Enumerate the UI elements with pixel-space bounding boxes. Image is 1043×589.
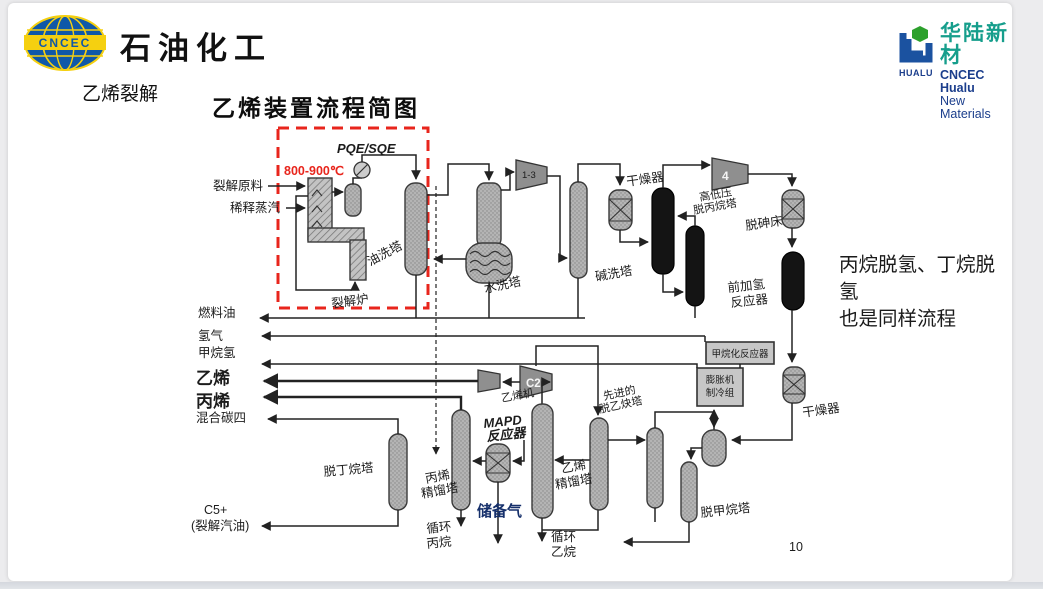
- demethanizer-label: 脱甲烷塔: [700, 500, 752, 520]
- product-c5-sub: (裂解汽油): [191, 518, 249, 533]
- recycle-propane-label-1: 循环: [426, 519, 452, 536]
- process-flow-diagram: 1-3 4 甲烷化反应器: [0, 0, 1043, 589]
- water-wash-column: [434, 172, 514, 318]
- pqe-sqe-label: PQE/SQE: [337, 141, 396, 156]
- recycle-ethane-label-1: 循环: [551, 530, 576, 544]
- dearsenic-bed: [782, 190, 804, 247]
- feed-label: 裂解原料: [213, 179, 264, 193]
- product-c5: C5+: [204, 503, 227, 517]
- ethylene-col-label-2: 精馏塔: [554, 471, 594, 492]
- deacetylene-column: [590, 418, 645, 510]
- charge-gas-compressor-1-3: 1-3: [516, 160, 567, 258]
- recycle-ethane-label-2: 乙烷: [551, 545, 577, 559]
- caustic-wash-column: [570, 164, 620, 318]
- reflux-drum: [691, 430, 726, 466]
- expander-chiller-box: 膨胀机 制冷组: [697, 364, 743, 430]
- product-ethylene: 乙烯: [196, 368, 230, 388]
- page-number: 10: [789, 540, 803, 554]
- dryer1-label: 干燥器: [625, 170, 665, 189]
- furnace-label: 裂解炉: [330, 292, 369, 311]
- oil-wash-column: [405, 164, 489, 318]
- caustic-wash-label: 碱洗塔: [594, 264, 634, 284]
- temperature-note: 800-900℃: [284, 164, 344, 178]
- depropanizer-columns: [652, 165, 710, 318]
- compressor-4: 4: [712, 158, 792, 190]
- dearsenic-label: 脱砷床: [744, 213, 784, 233]
- methanation-label: 甲烷化反应器: [711, 348, 769, 360]
- expander-label-2: 制冷组: [706, 387, 735, 399]
- mapd-reactor: [473, 440, 524, 543]
- dryer-1: [609, 190, 648, 242]
- product-propylene: 丙烯: [196, 391, 230, 411]
- steam-label: 稀释蒸汽: [230, 200, 281, 215]
- expander-label-1: 膨胀机: [706, 374, 735, 386]
- mapd-label-2: 反应器: [486, 425, 528, 444]
- front-hydrogenation-reactor: [782, 252, 804, 362]
- ethylene-comp-label: 乙烯机: [500, 385, 535, 405]
- comp4-label: 4: [722, 169, 729, 183]
- product-methane-h: 甲烷氢: [198, 345, 236, 360]
- oil-wash-label: 油洗塔: [365, 238, 405, 268]
- comp13-label: 1-3: [522, 170, 536, 181]
- methanation-reactor-box: 甲烷化反应器: [706, 342, 774, 364]
- propylene-fractionator: [452, 410, 470, 526]
- reserve-gas-note: 储备气: [477, 502, 522, 520]
- dryer2-label: 干燥器: [801, 401, 841, 420]
- bottom-band: [0, 582, 1043, 589]
- product-hydrogen: 氢气: [198, 328, 224, 343]
- product-mixed-c4: 混合碳四: [196, 410, 246, 425]
- debutanizer-label: 脱丁烷塔: [323, 460, 375, 479]
- recycle-propane-label-2: 丙烷: [426, 534, 453, 551]
- product-fuel-oil: 燃料油: [198, 305, 236, 320]
